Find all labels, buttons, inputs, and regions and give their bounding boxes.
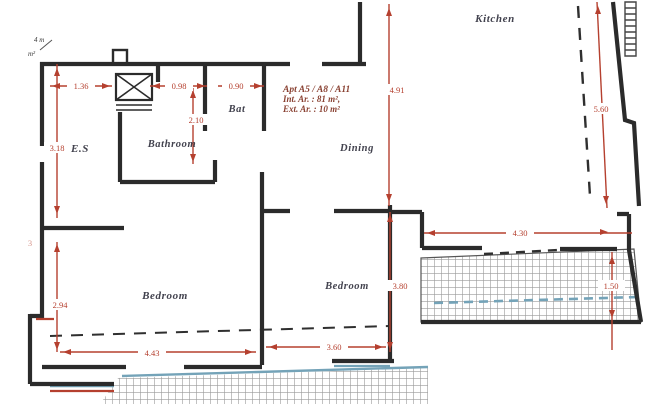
room-label-es: E.S: [70, 143, 89, 155]
wall-terrace-step: [390, 212, 482, 248]
apartment-annotation: Apt A5 / A8 / A11 Int. Ar. : 81 m², Ext.…: [282, 85, 350, 114]
room-label-bat: Bat: [228, 104, 246, 115]
dim-label-136: 1.36: [74, 81, 89, 91]
dimension-lines: [36, 2, 632, 391]
dim-label-360: 3.60: [327, 342, 342, 352]
wall-bat: [205, 64, 264, 131]
fragment-text-1: 4 m: [34, 36, 44, 44]
wall-bedroom-divider: [262, 172, 290, 365]
walls: [30, 2, 641, 384]
room-label-bathroom: Bathroom: [147, 139, 197, 150]
dim-label-210: 2.10: [189, 115, 204, 125]
room-label-bedroom1: Bedroom: [141, 290, 188, 302]
dim-label-318: 3.18: [50, 143, 65, 153]
dim-label-380: 3.80: [393, 281, 408, 291]
bedroom-dashed-line: [50, 326, 389, 336]
dim-label-294: 2.94: [53, 300, 69, 310]
elevator-shaft: [116, 74, 152, 110]
stair-treads: [116, 105, 152, 110]
dim-label-090: 0.90: [229, 81, 244, 91]
room-label-kitchen: Kitchen: [474, 13, 515, 25]
corner-fragment: 4 m m²: [28, 36, 52, 58]
apt-int-area: Int. Ar. : 81 m²,: [282, 94, 340, 104]
dim-label-443: 4.43: [145, 348, 160, 358]
dim-label-430: 4.30: [513, 228, 528, 238]
dim-label-491: 4.91: [390, 85, 405, 95]
dim-label-left-cropped: 3: [28, 238, 32, 248]
dim-label-150: 1.50: [604, 281, 619, 291]
elevator-x-icon: [116, 74, 152, 100]
apt-ext-area: Ext. Ar. : 10 m²: [282, 104, 340, 114]
floor-plan: 1.36 0.98 0.90 2.10 3.18 2.94 4.43 3.60 …: [0, 0, 672, 404]
dim-label-560: 5.60: [594, 104, 609, 114]
room-label-dining: Dining: [339, 143, 374, 154]
fragment-text-2: m²: [28, 50, 36, 58]
right-diagonal-dashed-line: [578, 6, 590, 196]
balcony-hatch-bottom: [100, 368, 428, 404]
wall-hatch-strip: [625, 2, 636, 56]
room-label-bedroom2: Bedroom: [324, 281, 369, 292]
dim-label-098: 0.98: [172, 81, 187, 91]
floor-plan-canvas: 1.36 0.98 0.90 2.10 3.18 2.94 4.43 3.60 …: [0, 0, 672, 404]
wall-top: [40, 2, 366, 64]
